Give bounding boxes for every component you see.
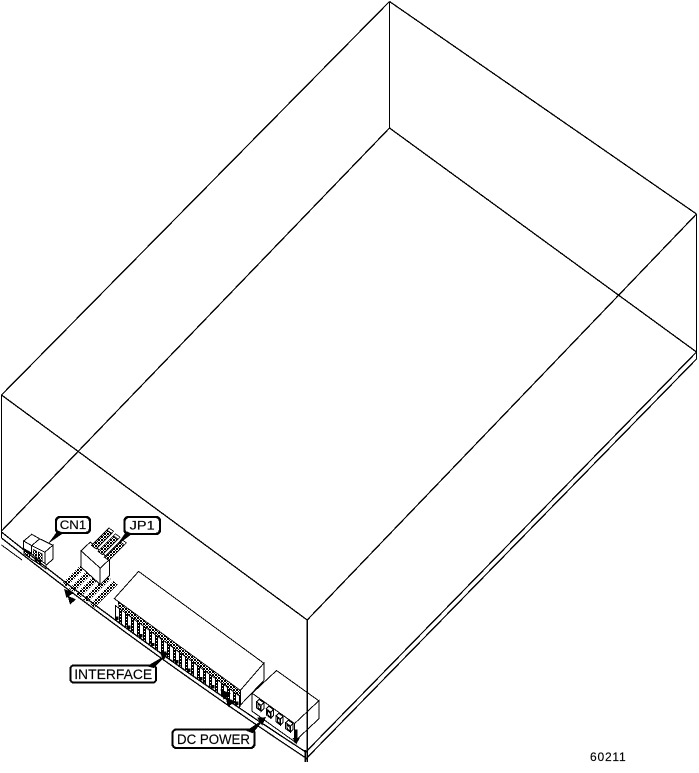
svg-text:DC POWER: DC POWER bbox=[177, 732, 250, 748]
svg-text:CN1: CN1 bbox=[60, 520, 87, 532]
svg-text:JP1: JP1 bbox=[130, 521, 155, 533]
svg-text:60211: 60211 bbox=[590, 750, 626, 764]
svg-text:INTERFACE: INTERFACE bbox=[74, 667, 152, 683]
